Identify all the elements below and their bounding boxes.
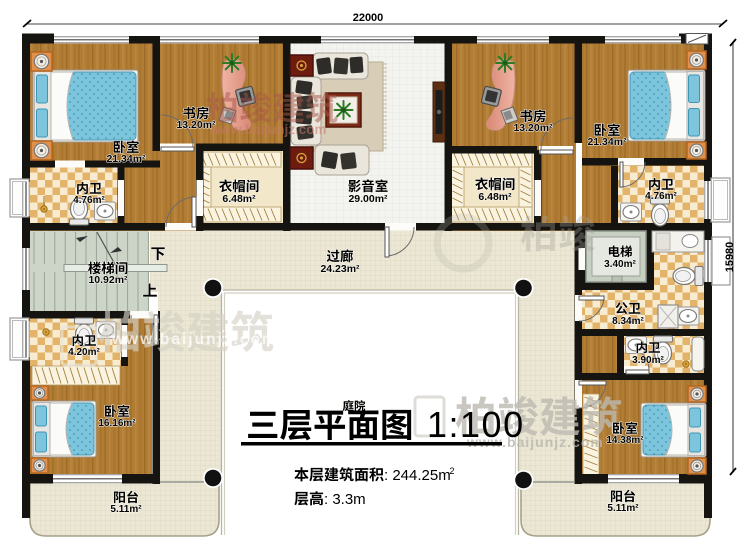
svg-text:24.23m²: 24.23m² (320, 263, 360, 275)
svg-text:5.11m²: 5.11m² (607, 503, 639, 514)
svg-text:1:100: 1:100 (427, 404, 525, 445)
svg-text:: 244.25m: : 244.25m (384, 467, 451, 484)
svg-text:13.20m²: 13.20m² (513, 122, 553, 134)
svg-text:21.34m²: 21.34m² (587, 136, 627, 148)
svg-text:6.48m²: 6.48m² (478, 191, 512, 203)
svg-text:6.48m²: 6.48m² (222, 193, 256, 205)
svg-text:www.baijunjz.com: www.baijunjz.com (111, 331, 278, 348)
svg-text:8.34m²: 8.34m² (612, 316, 644, 327)
svg-text:5.11m²: 5.11m² (110, 504, 142, 515)
svg-text:16.16m²: 16.16m² (98, 418, 136, 429)
svg-text:4.20m²: 4.20m² (68, 347, 100, 358)
svg-text:4.76m²: 4.76m² (73, 195, 105, 206)
svg-text:15980: 15980 (724, 242, 736, 273)
svg-text:: 3.3m: : 3.3m (324, 491, 366, 508)
svg-text:2: 2 (450, 466, 455, 476)
svg-text:29.00m²: 29.00m² (348, 193, 388, 205)
svg-text:22000: 22000 (353, 12, 384, 24)
svg-text:3.40m²: 3.40m² (604, 259, 636, 270)
svg-text:3.90m²: 3.90m² (632, 355, 664, 366)
svg-text:www.baijunjz.com: www.baijunjz.com (209, 122, 327, 137)
svg-text:21.34m²: 21.34m² (106, 153, 146, 165)
svg-text:10.92m²: 10.92m² (88, 274, 128, 286)
svg-text:14.38m²: 14.38m² (606, 435, 644, 446)
svg-text:4.76m²: 4.76m² (645, 191, 677, 202)
svg-text:13.20m²: 13.20m² (176, 119, 216, 131)
